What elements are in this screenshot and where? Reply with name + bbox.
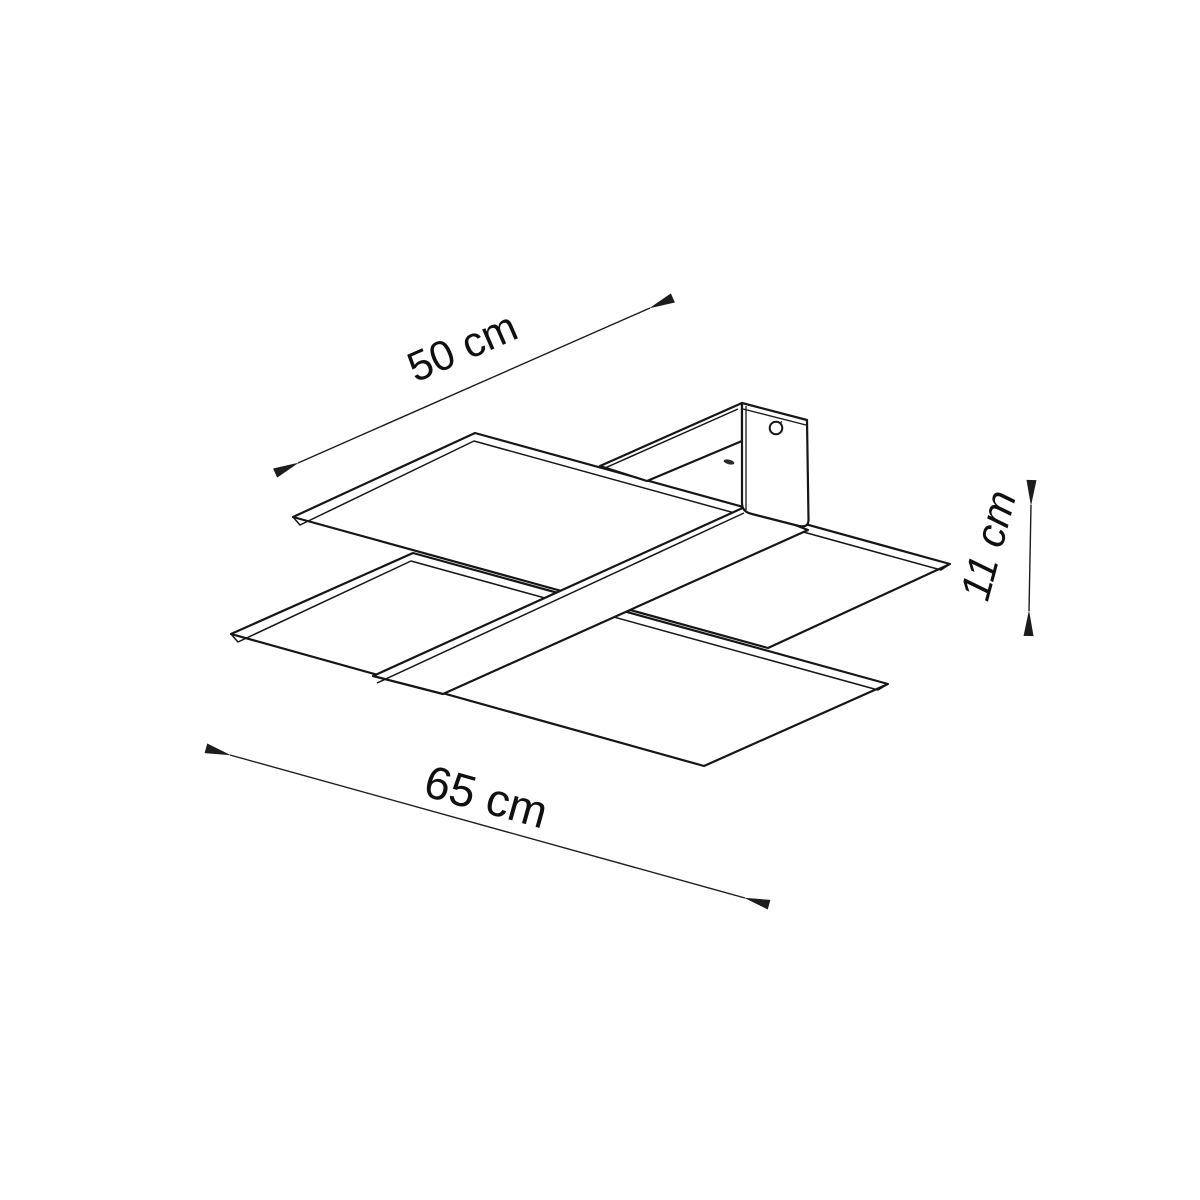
dimension-arrow-height (1029, 505, 1031, 611)
ceiling-mount-flange (600, 403, 742, 481)
cable-slot-icon (723, 458, 735, 465)
drawing-canvas: 50 cm 65 cm 11 cm (0, 0, 1200, 1200)
dimension-width: 65 cm (230, 755, 745, 898)
lamp-body (231, 403, 950, 766)
dimension-label-height: 11 cm (951, 485, 1025, 605)
dimension-height: 11 cm (951, 485, 1031, 611)
dimension-label-depth: 50 cm (400, 302, 524, 391)
screw-hole-icon (770, 422, 783, 435)
lamp-dimension-drawing: 50 cm 65 cm 11 cm (0, 0, 1200, 1200)
